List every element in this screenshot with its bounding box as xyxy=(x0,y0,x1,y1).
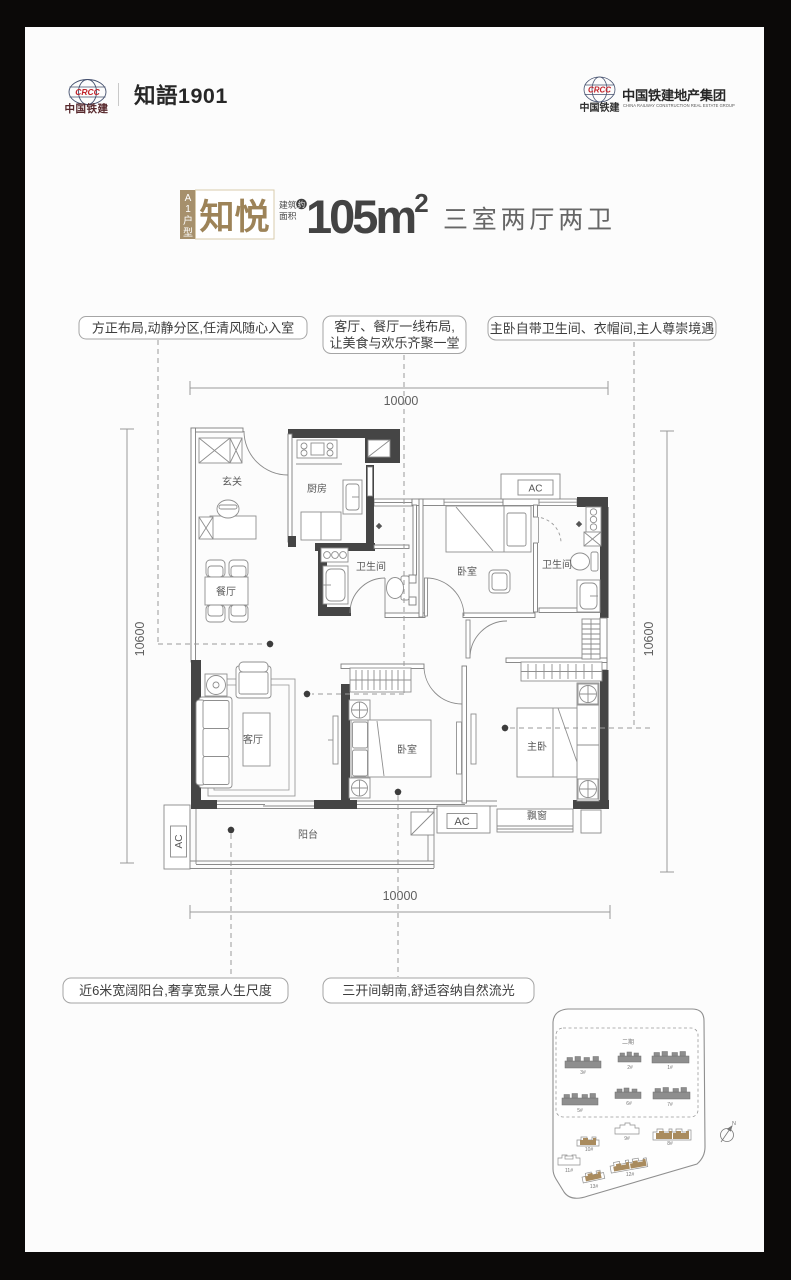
svg-text:约: 约 xyxy=(298,200,305,209)
svg-text:户: 户 xyxy=(183,214,193,227)
svg-text:105m2: 105m2 xyxy=(306,188,428,243)
svg-text:方正布局,动静分区,任清风随心入室: 方正布局,动静分区,任清风随心入室 xyxy=(92,321,294,336)
svg-text:10000: 10000 xyxy=(384,394,419,408)
svg-text:AC: AC xyxy=(454,816,469,828)
svg-text:卧室: 卧室 xyxy=(457,565,477,578)
svg-text:7#: 7# xyxy=(667,1102,673,1108)
svg-text:主卧自带卫生间、衣帽间,主人尊崇境遇: 主卧自带卫生间、衣帽间,主人尊崇境遇 xyxy=(490,321,715,336)
svg-text:12#: 12# xyxy=(626,1172,635,1178)
svg-text:主卧: 主卧 xyxy=(527,740,547,753)
svg-text:10000: 10000 xyxy=(383,889,418,903)
svg-text:近6米宽阔阳台,奢享宽景人生尺度: 近6米宽阔阳台,奢享宽景人生尺度 xyxy=(79,983,272,998)
svg-text:CRCC: CRCC xyxy=(588,86,611,95)
svg-text:A: A xyxy=(185,193,192,204)
svg-text:3#: 3# xyxy=(580,1070,586,1076)
svg-text:13#: 13# xyxy=(590,1184,599,1190)
svg-text:CHINA RAILWAY CONSTRUCTION REA: CHINA RAILWAY CONSTRUCTION REAL ESTATE G… xyxy=(623,103,735,108)
svg-text:卫生间: 卫生间 xyxy=(356,560,386,573)
svg-text:厨房: 厨房 xyxy=(307,482,327,495)
svg-text:11#: 11# xyxy=(565,1168,573,1174)
svg-text:1#: 1# xyxy=(667,1065,673,1071)
svg-text:知悦: 知悦 xyxy=(199,198,269,237)
svg-text:CRCC: CRCC xyxy=(75,87,100,97)
svg-text:8#: 8# xyxy=(667,1141,673,1147)
svg-text:客厅、餐厅一线布局,: 客厅、餐厅一线布局, xyxy=(334,319,455,334)
svg-text:知語1901: 知語1901 xyxy=(134,83,228,108)
svg-text:10600: 10600 xyxy=(642,622,656,657)
svg-text:三开间朝南,舒适容纳自然流光: 三开间朝南,舒适容纳自然流光 xyxy=(342,983,515,998)
svg-text:二期: 二期 xyxy=(622,1038,634,1046)
svg-text:玄关: 玄关 xyxy=(222,475,242,488)
svg-text:型: 型 xyxy=(183,226,193,239)
svg-text:6#: 6# xyxy=(626,1101,632,1107)
svg-text:三室两厅两卫: 三室两厅两卫 xyxy=(443,206,616,234)
svg-text:中国铁建地产集团: 中国铁建地产集团 xyxy=(622,87,726,103)
svg-text:10#: 10# xyxy=(585,1147,594,1153)
svg-text:AC: AC xyxy=(529,484,543,495)
svg-text:2#: 2# xyxy=(627,1065,633,1071)
svg-text:9#: 9# xyxy=(624,1136,630,1142)
svg-text:卧室: 卧室 xyxy=(397,743,417,756)
svg-text:10600: 10600 xyxy=(133,622,147,657)
svg-text:餐厅: 餐厅 xyxy=(216,585,236,598)
svg-text:AC: AC xyxy=(174,835,185,849)
svg-text:中国铁建: 中国铁建 xyxy=(65,102,109,115)
svg-text:让美食与欢乐齐聚一堂: 让美食与欢乐齐聚一堂 xyxy=(329,336,459,351)
svg-text:卫生间: 卫生间 xyxy=(542,558,572,571)
svg-text:1: 1 xyxy=(185,204,191,215)
svg-text:客厅: 客厅 xyxy=(243,733,263,746)
svg-text:5#: 5# xyxy=(577,1108,583,1114)
svg-text:面积: 面积 xyxy=(279,210,297,221)
svg-text:阳台: 阳台 xyxy=(298,828,318,841)
svg-text:飘窗: 飘窗 xyxy=(527,809,547,822)
svg-text:建筑: 建筑 xyxy=(279,199,297,210)
svg-text:N: N xyxy=(732,1121,736,1127)
svg-text:中国铁建: 中国铁建 xyxy=(580,101,621,114)
